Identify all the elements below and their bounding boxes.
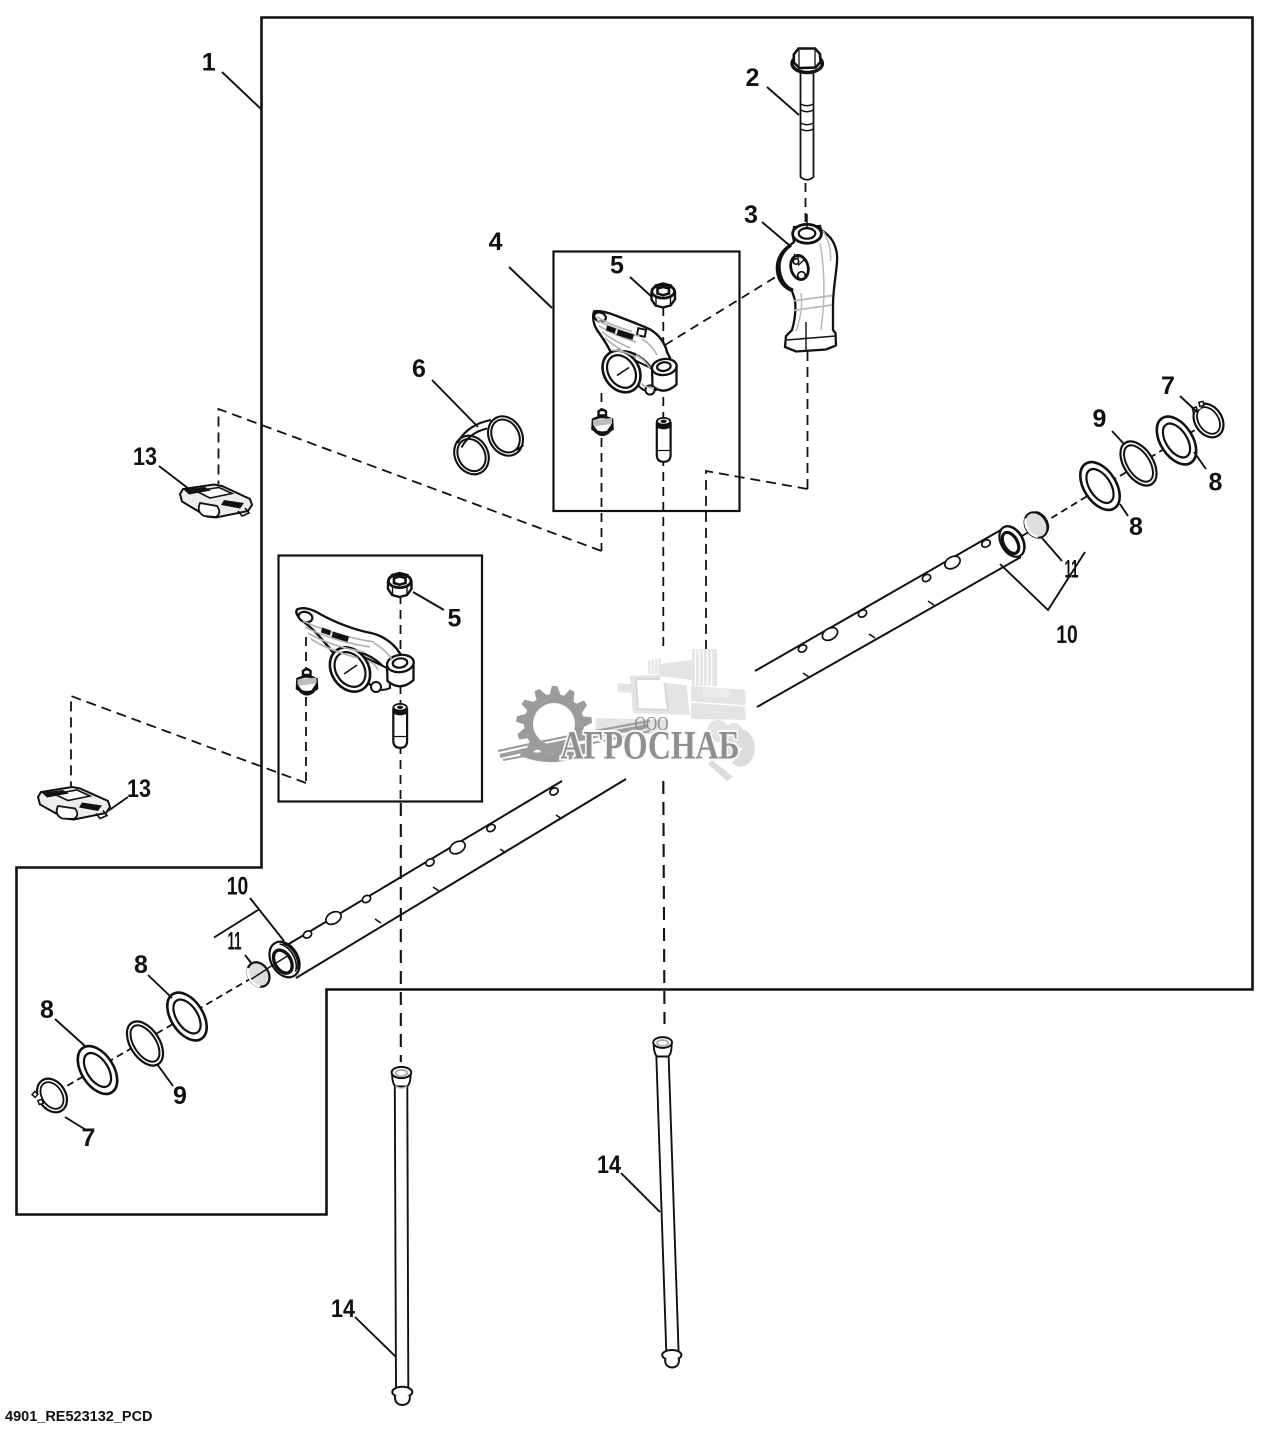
svg-text:5: 5 xyxy=(448,605,462,633)
svg-text:9: 9 xyxy=(1093,405,1107,433)
svg-text:13: 13 xyxy=(133,443,157,471)
svg-text:13: 13 xyxy=(127,775,151,803)
svg-text:11: 11 xyxy=(1065,556,1079,584)
svg-text:10: 10 xyxy=(1056,621,1078,649)
svg-text:3: 3 xyxy=(744,201,758,229)
svg-text:14: 14 xyxy=(331,1295,355,1323)
svg-text:11: 11 xyxy=(228,928,242,956)
svg-text:6: 6 xyxy=(412,355,426,383)
svg-text:9: 9 xyxy=(173,1082,187,1110)
svg-text:8: 8 xyxy=(1208,469,1222,497)
svg-text:АГРОСНАБ: АГРОСНАБ xyxy=(561,723,740,768)
svg-text:1: 1 xyxy=(202,49,216,77)
svg-text:7: 7 xyxy=(1161,372,1175,400)
svg-text:4901_RE523132_PCD: 4901_RE523132_PCD xyxy=(5,1409,153,1425)
svg-text:4: 4 xyxy=(489,228,503,256)
svg-text:8: 8 xyxy=(40,996,54,1024)
svg-text:5: 5 xyxy=(610,252,624,280)
svg-text:7: 7 xyxy=(82,1124,96,1152)
svg-text:8: 8 xyxy=(1129,513,1143,541)
svg-text:14: 14 xyxy=(597,1151,621,1179)
svg-text:2: 2 xyxy=(746,64,760,92)
svg-text:10: 10 xyxy=(227,873,249,901)
svg-text:8: 8 xyxy=(134,951,148,979)
